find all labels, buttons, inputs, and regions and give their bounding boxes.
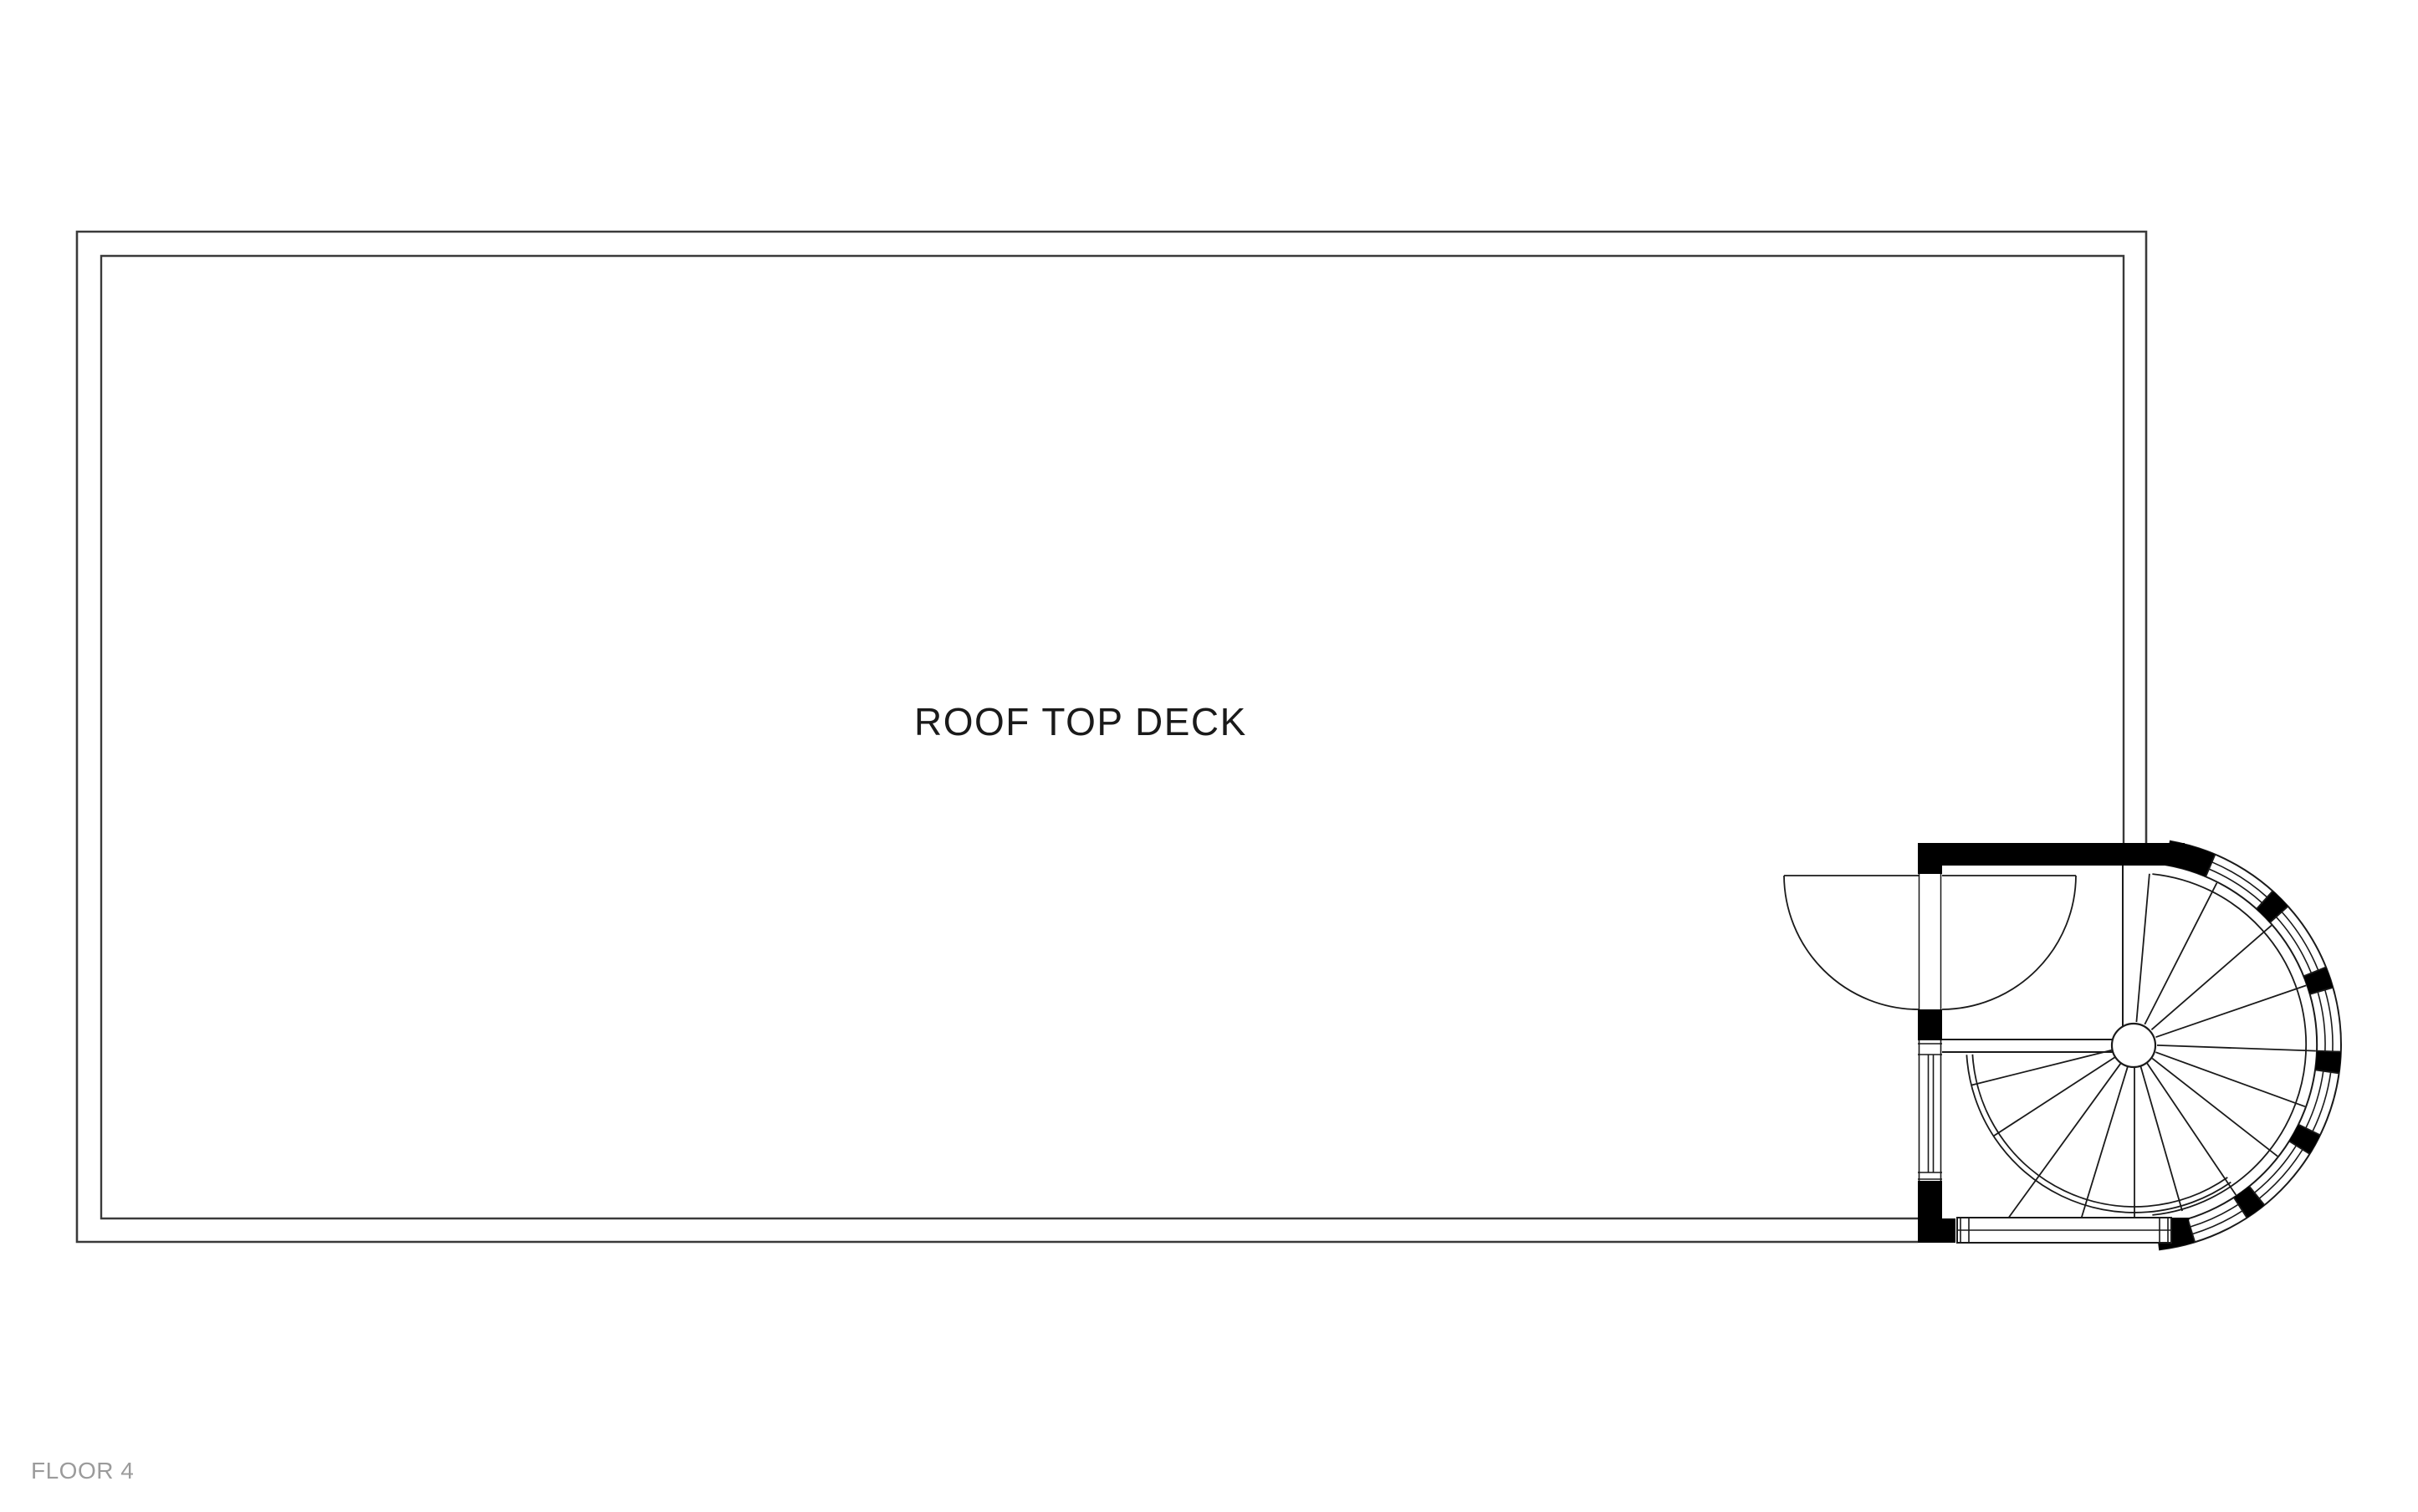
- left-wall-window: [1918, 1040, 1942, 1181]
- room-label: ROOF TOP DECK: [914, 702, 1247, 741]
- entry-door: [1784, 874, 2076, 1009]
- bottom-window: [1957, 1218, 2171, 1243]
- stair-hub: [2112, 1024, 2155, 1067]
- stair-top-wall: [1918, 843, 2185, 866]
- door-swing-arc: [1942, 876, 2076, 1009]
- curved-window-wall: [2157, 841, 2341, 1249]
- floor-plan-svg: [0, 0, 2418, 1512]
- vestibule-partition: [1942, 866, 2123, 1052]
- spiral-staircase: [1784, 841, 2341, 1249]
- stair-treads: [1966, 874, 2316, 1218]
- floor-plan-page: ROOF TOP DECK FLOOR 4: [0, 0, 2418, 1512]
- door-swing-arc: [1784, 876, 1919, 1009]
- floor-label: FLOOR 4: [31, 1459, 134, 1483]
